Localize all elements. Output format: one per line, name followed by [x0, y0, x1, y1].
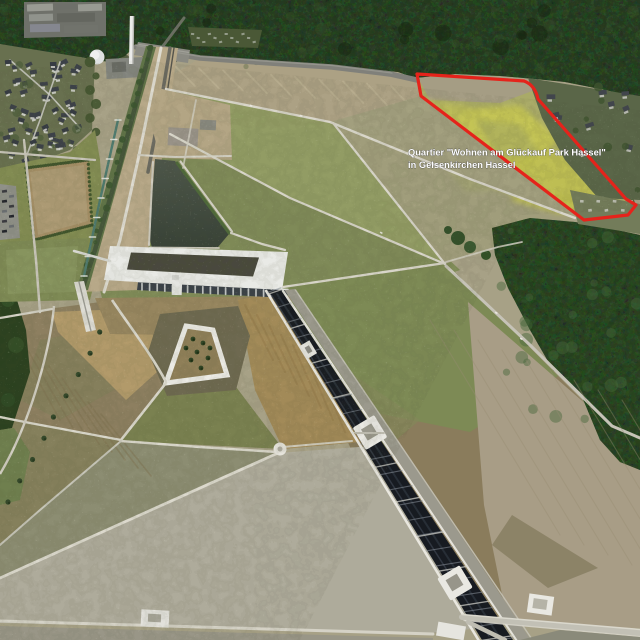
svg-text:Quartier "Wohnen am Glückauf P: Quartier "Wohnen am Glückauf Park Hassel… — [408, 148, 606, 158]
svg-text:in Gelsenkirchen Hassel: in Gelsenkirchen Hassel — [408, 160, 515, 170]
